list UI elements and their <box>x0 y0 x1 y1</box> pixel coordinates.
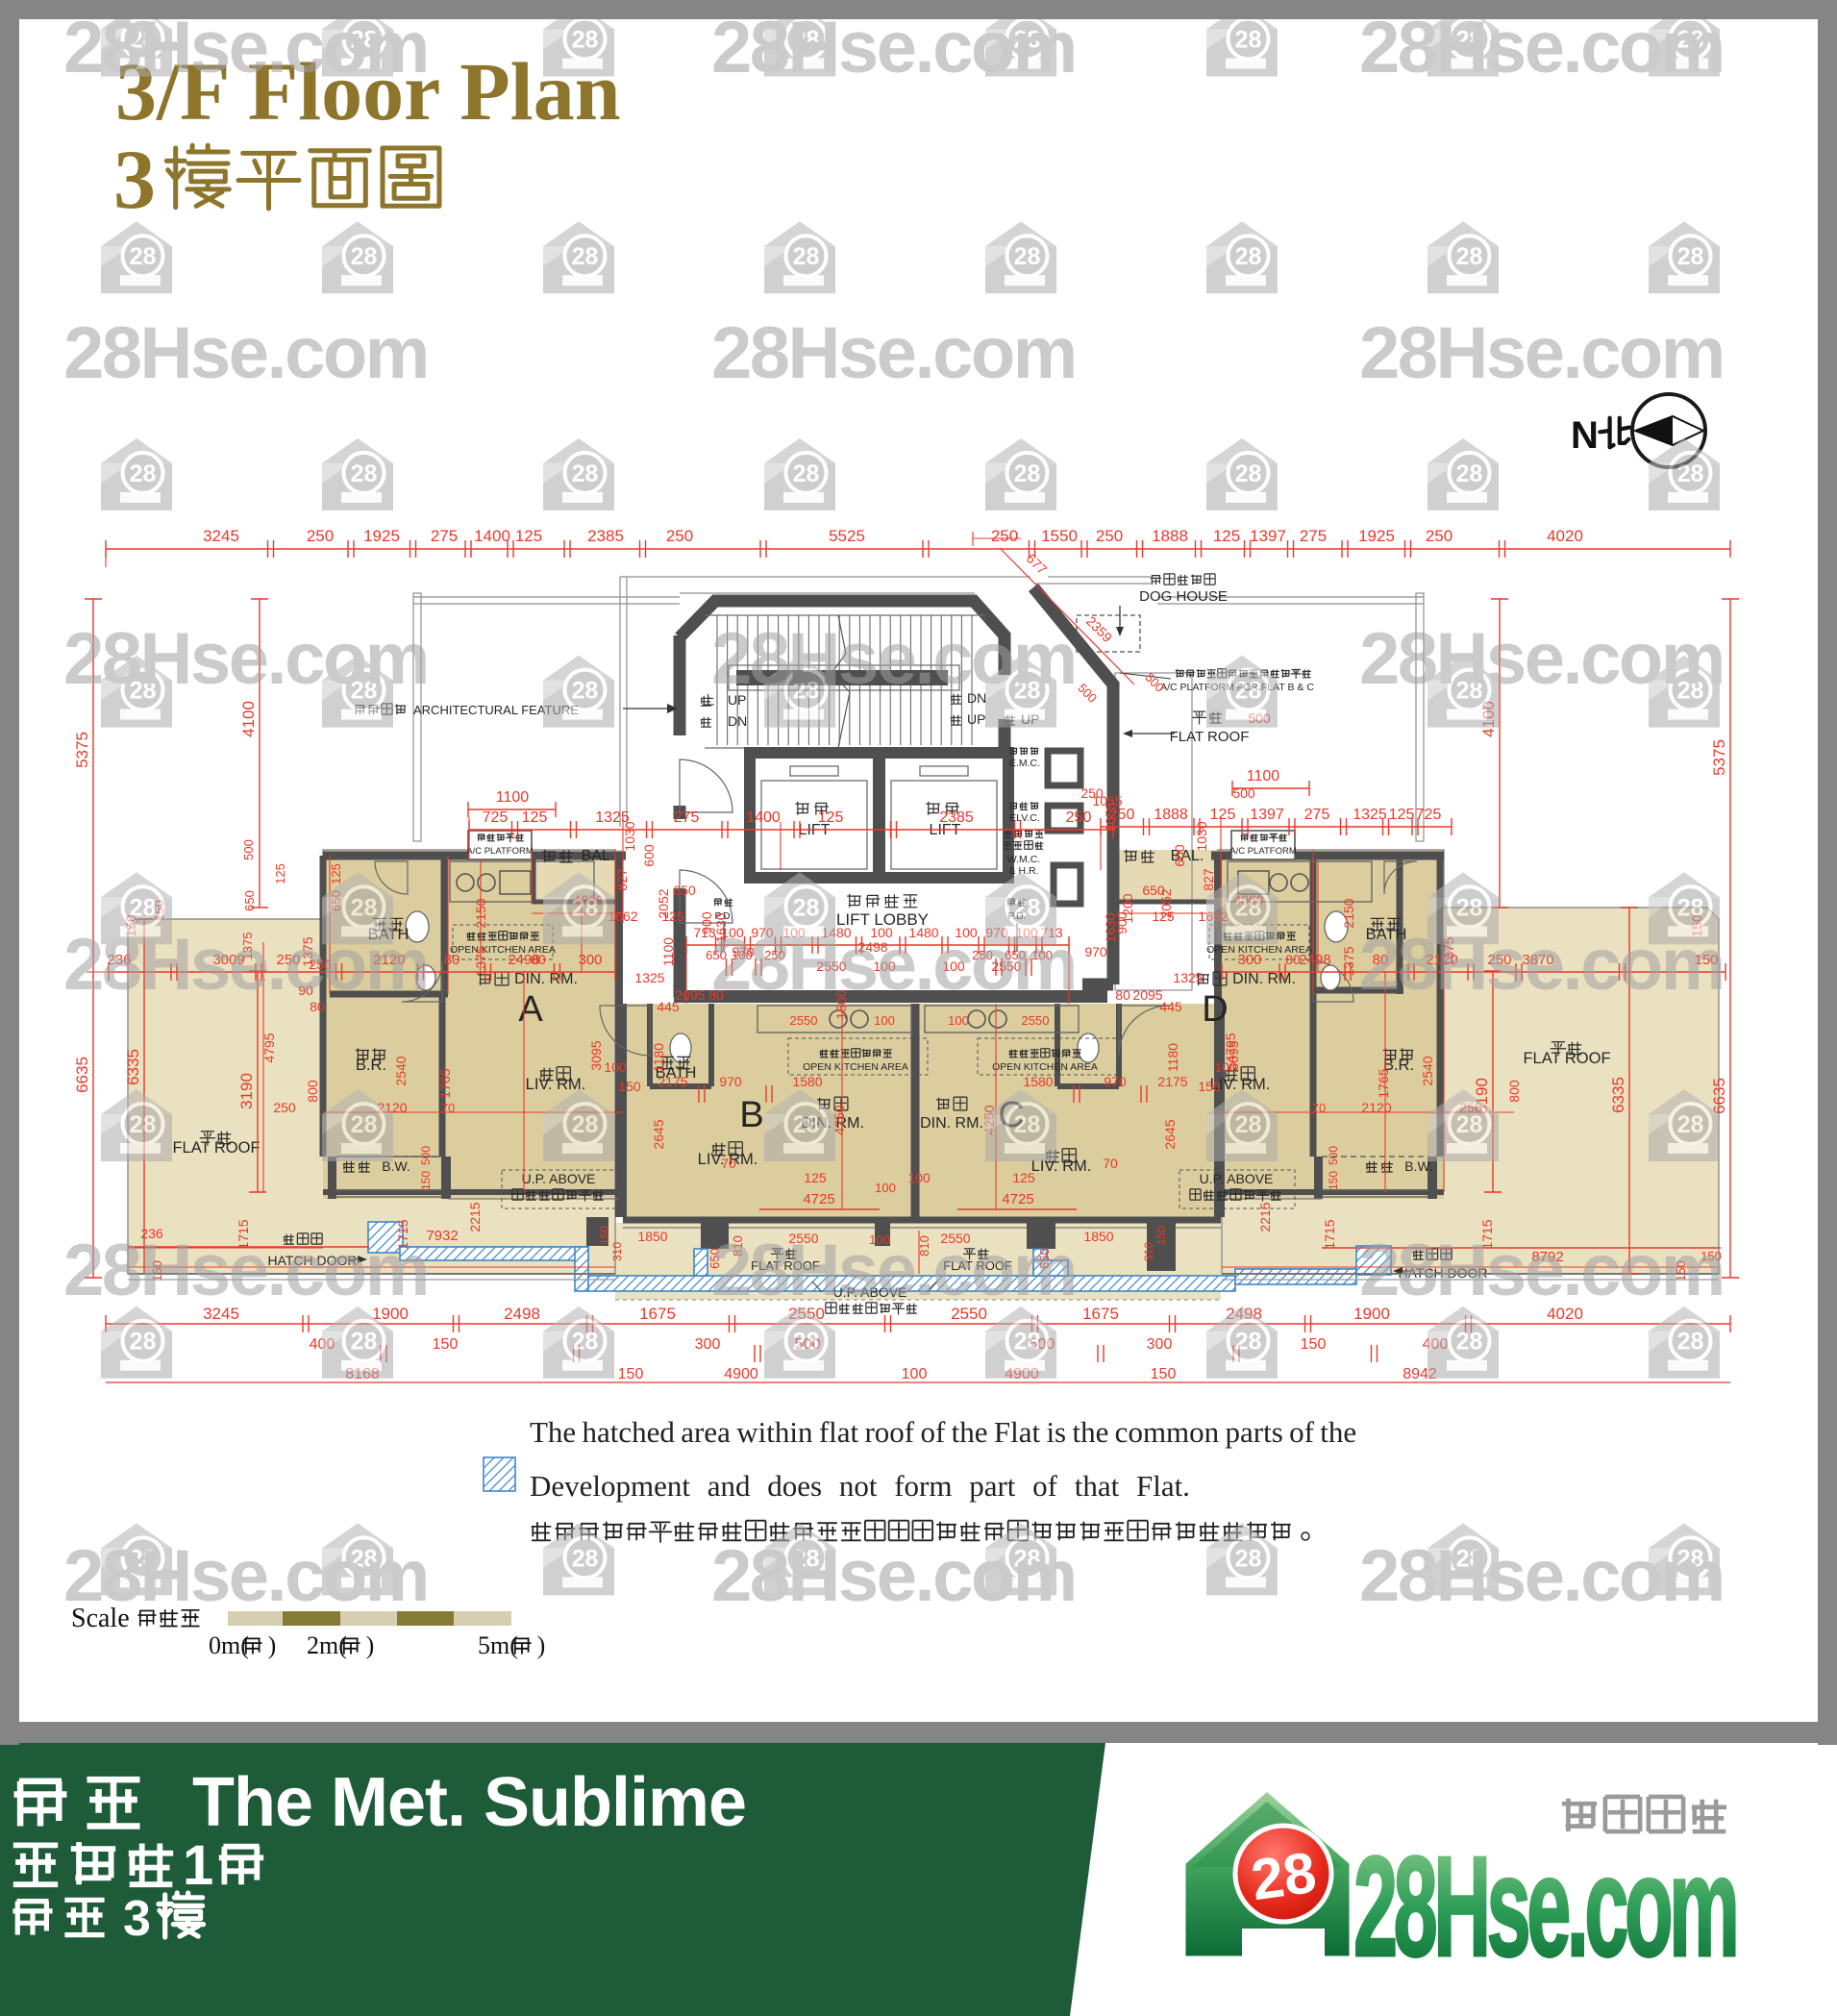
svg-text:E.M.C.: E.M.C. <box>1009 758 1040 769</box>
svg-text:1765: 1765 <box>437 1068 453 1098</box>
svg-text:): ) <box>268 1631 277 1659</box>
svg-text:28Hse.com: 28Hse.com <box>63 618 428 700</box>
svg-text:250: 250 <box>991 527 1018 545</box>
svg-text:445: 445 <box>1159 999 1182 1014</box>
svg-text:28Hse.com: 28Hse.com <box>63 1535 428 1617</box>
svg-text:70: 70 <box>721 1156 736 1171</box>
svg-text:70: 70 <box>441 1101 455 1115</box>
svg-text:1888: 1888 <box>1152 527 1188 545</box>
svg-text:800: 800 <box>305 1080 320 1103</box>
svg-text:125: 125 <box>804 1170 827 1185</box>
svg-text:28Hse.com: 28Hse.com <box>63 1230 428 1311</box>
svg-text:7932: 7932 <box>426 1228 458 1244</box>
svg-text:3: 3 <box>123 1891 151 1947</box>
svg-text:1397: 1397 <box>1250 527 1286 545</box>
svg-text:970: 970 <box>1084 944 1107 959</box>
svg-text:150: 150 <box>1327 1171 1340 1190</box>
svg-text:The Met. Sublime: The Met. Sublime <box>192 1764 746 1841</box>
svg-text:1: 1 <box>183 1834 213 1897</box>
svg-text:275: 275 <box>674 809 700 826</box>
svg-text:125: 125 <box>1210 807 1236 823</box>
svg-text:4725: 4725 <box>1002 1191 1033 1207</box>
svg-text:5375: 5375 <box>73 732 91 768</box>
svg-text:2385: 2385 <box>939 809 974 826</box>
svg-text:150: 150 <box>1301 1336 1327 1353</box>
svg-text:250: 250 <box>1426 527 1452 545</box>
svg-text:275: 275 <box>1304 807 1330 823</box>
svg-text:B: B <box>739 1095 763 1135</box>
svg-text:2645: 2645 <box>651 1119 666 1149</box>
svg-text:125: 125 <box>515 527 542 545</box>
svg-text:2215: 2215 <box>467 1202 483 1232</box>
svg-text:125: 125 <box>1012 1170 1035 1185</box>
svg-text:80: 80 <box>1285 952 1301 967</box>
svg-text:125: 125 <box>661 908 684 924</box>
svg-text:2550: 2550 <box>790 1013 818 1028</box>
svg-text:1925: 1925 <box>1358 527 1395 545</box>
svg-text:1550: 1550 <box>1041 527 1078 545</box>
svg-text:650: 650 <box>242 890 257 911</box>
svg-text:100: 100 <box>874 1013 895 1028</box>
svg-text:LIV. RM.: LIV. RM. <box>526 1076 586 1093</box>
svg-text:125: 125 <box>522 809 548 826</box>
svg-text:445: 445 <box>657 999 680 1014</box>
svg-text:W.M.C.: W.M.C. <box>1007 854 1040 865</box>
svg-text:1100: 1100 <box>496 789 530 806</box>
svg-text:970: 970 <box>1104 1074 1127 1089</box>
svg-text:100: 100 <box>875 1181 896 1195</box>
svg-text:1765: 1765 <box>1376 1068 1391 1098</box>
svg-text:1850: 1850 <box>637 1229 667 1244</box>
svg-text:DOG HOUSE: DOG HOUSE <box>1139 588 1228 605</box>
svg-text:U.P. ABOVE: U.P. ABOVE <box>1200 1171 1274 1186</box>
svg-text:FLAT ROOF: FLAT ROOF <box>1170 729 1250 745</box>
svg-text:500: 500 <box>1232 785 1255 801</box>
svg-text:6335: 6335 <box>1609 1077 1627 1113</box>
svg-text:125: 125 <box>1213 527 1240 545</box>
svg-text:125: 125 <box>329 863 343 884</box>
svg-text:300: 300 <box>695 1336 721 1353</box>
svg-text:DIN. RM.: DIN. RM. <box>1232 971 1296 987</box>
svg-text:150: 150 <box>1154 1226 1168 1245</box>
svg-text:28: 28 <box>1248 1840 1320 1913</box>
svg-text:FLAT ROOF: FLAT ROOF <box>1523 1050 1610 1067</box>
svg-text:1397: 1397 <box>1250 807 1284 823</box>
svg-text:1325: 1325 <box>1353 807 1387 823</box>
svg-text:1850: 1850 <box>1083 1229 1113 1244</box>
svg-text:600: 600 <box>1172 844 1187 867</box>
svg-text:28Hse.com: 28Hse.com <box>63 924 428 1006</box>
svg-text:970: 970 <box>719 1074 742 1089</box>
svg-text:150: 150 <box>598 1226 611 1245</box>
svg-text:3095: 3095 <box>588 1040 604 1070</box>
svg-text:80: 80 <box>444 952 460 968</box>
svg-text:310: 310 <box>610 1242 624 1261</box>
svg-text:A/C PLATFORM: A/C PLATFORM <box>466 846 534 857</box>
svg-text:500: 500 <box>419 1146 433 1165</box>
svg-text:300: 300 <box>1237 952 1261 968</box>
svg-text:2120: 2120 <box>1361 1100 1391 1115</box>
svg-text:1100: 1100 <box>1247 768 1280 784</box>
svg-text:1925: 1925 <box>363 527 400 545</box>
svg-text:DIN. RM.: DIN. RM. <box>920 1115 983 1132</box>
svg-text:6635: 6635 <box>1710 1078 1728 1114</box>
svg-text:150: 150 <box>433 1336 459 1353</box>
svg-text:150: 150 <box>1151 1366 1177 1382</box>
svg-text:125: 125 <box>1389 807 1415 823</box>
svg-text:250: 250 <box>666 527 693 545</box>
svg-text:28Hse.com: 28Hse.com <box>711 618 1076 700</box>
svg-text:5375: 5375 <box>1710 739 1728 776</box>
svg-text:2498: 2498 <box>1299 952 1330 968</box>
svg-text:D: D <box>1202 989 1228 1030</box>
svg-text:80: 80 <box>1115 987 1130 1003</box>
svg-text:100: 100 <box>948 1013 969 1028</box>
svg-text:150: 150 <box>618 1366 644 1382</box>
svg-text:6635: 6635 <box>73 1057 91 1093</box>
svg-text:A: A <box>518 989 543 1030</box>
svg-text:100: 100 <box>907 1170 931 1185</box>
svg-text:250: 250 <box>307 527 334 545</box>
svg-text:2385: 2385 <box>587 527 624 545</box>
svg-text:2150: 2150 <box>1341 898 1356 928</box>
svg-text:28Hse.com: 28Hse.com <box>711 1535 1076 1617</box>
svg-text:1180: 1180 <box>1165 1043 1180 1072</box>
svg-text:1180: 1180 <box>651 1043 666 1072</box>
svg-text:275: 275 <box>1300 527 1327 545</box>
svg-text:Development and does not form: Development and does not form part of th… <box>530 1469 1190 1503</box>
svg-text:500: 500 <box>1327 1146 1340 1165</box>
svg-text:1100: 1100 <box>660 937 676 966</box>
svg-text:2175: 2175 <box>1157 1074 1187 1089</box>
svg-text:250: 250 <box>273 1100 296 1115</box>
svg-text:100: 100 <box>604 1059 627 1075</box>
svg-text:1325: 1325 <box>1173 970 1203 985</box>
svg-text:4020: 4020 <box>1547 527 1583 545</box>
svg-text:28Hse.com: 28Hse.com <box>711 1230 1076 1311</box>
svg-text:1030: 1030 <box>1194 821 1209 851</box>
svg-text:2m(: 2m( <box>307 1631 347 1659</box>
svg-text:2498: 2498 <box>504 1305 540 1323</box>
svg-text:250: 250 <box>1096 527 1123 545</box>
svg-text:725: 725 <box>483 809 509 826</box>
svg-text:275: 275 <box>431 527 458 545</box>
svg-text:4100: 4100 <box>239 701 258 737</box>
svg-text:DN: DN <box>728 713 747 729</box>
svg-text:800: 800 <box>1506 1080 1522 1103</box>
svg-text:6335: 6335 <box>124 1049 142 1085</box>
svg-text:U.P. ABOVE: U.P. ABOVE <box>522 1171 596 1186</box>
svg-text:28Hse.com: 28Hse.com <box>1359 312 1724 394</box>
svg-text:827: 827 <box>1201 868 1216 891</box>
svg-text:1580: 1580 <box>1023 1074 1053 1089</box>
svg-text:4900: 4900 <box>724 1366 758 1382</box>
svg-text:5525: 5525 <box>829 527 865 545</box>
svg-text:125: 125 <box>273 863 287 884</box>
svg-text:80: 80 <box>531 952 546 967</box>
svg-text:The hatched area within flat r: The hatched area within flat roof of the… <box>530 1415 1356 1449</box>
svg-text:2540: 2540 <box>393 1056 409 1085</box>
svg-text:1400: 1400 <box>474 527 510 545</box>
svg-text:150: 150 <box>1198 1079 1221 1094</box>
svg-text:4725: 4725 <box>803 1191 834 1207</box>
svg-text:OPEN KITCHEN AREA: OPEN KITCHEN AREA <box>992 1061 1098 1073</box>
svg-text:3190: 3190 <box>237 1073 256 1109</box>
svg-text:2550: 2550 <box>1022 1013 1050 1028</box>
svg-text:2215: 2215 <box>1257 1202 1273 1232</box>
svg-text:B.R.: B.R. <box>356 1057 386 1074</box>
svg-text:UP: UP <box>967 711 985 727</box>
svg-text:310: 310 <box>1142 1242 1155 1261</box>
svg-text:3: 3 <box>113 134 156 227</box>
svg-text:28Hse.com: 28Hse.com <box>711 924 1076 1006</box>
svg-text:70: 70 <box>1312 1101 1326 1115</box>
svg-text:4795: 4795 <box>1223 1033 1238 1062</box>
svg-text:600: 600 <box>641 844 657 867</box>
svg-text:OPEN KITCHEN AREA: OPEN KITCHEN AREA <box>803 1061 908 1073</box>
svg-text:N: N <box>1571 414 1599 457</box>
svg-text:BAL.: BAL. <box>582 848 615 864</box>
svg-text:1400: 1400 <box>746 809 781 826</box>
svg-text:A/C PLATFORM: A/C PLATFORM <box>1229 846 1297 857</box>
svg-text:28Hse.com: 28Hse.com <box>1359 1230 1724 1311</box>
svg-text:500: 500 <box>241 839 256 860</box>
svg-text:1715: 1715 <box>1322 1219 1337 1249</box>
svg-text:300: 300 <box>1147 1336 1173 1353</box>
svg-text:1580: 1580 <box>792 1074 822 1089</box>
svg-text:1675: 1675 <box>639 1305 676 1323</box>
svg-text:250: 250 <box>1066 809 1092 826</box>
svg-text:1325: 1325 <box>634 970 664 985</box>
svg-text:28Hse.com: 28Hse.com <box>1359 924 1724 1006</box>
svg-text:2645: 2645 <box>1162 1119 1178 1149</box>
svg-text:2095: 2095 <box>675 987 705 1003</box>
svg-text:28Hse.com: 28Hse.com <box>1359 618 1724 700</box>
svg-text:28Hse.com: 28Hse.com <box>711 312 1076 394</box>
svg-text:0m(: 0m( <box>209 1631 249 1659</box>
svg-text:): ) <box>366 1631 375 1659</box>
svg-text:2175: 2175 <box>658 1074 687 1089</box>
svg-text:3245: 3245 <box>203 527 239 545</box>
svg-text:1675: 1675 <box>1082 1305 1119 1323</box>
svg-text:1030: 1030 <box>622 821 637 851</box>
svg-text:28Hse.com: 28Hse.com <box>63 312 428 394</box>
svg-text:650: 650 <box>673 883 696 898</box>
svg-text:FLAT ROOF: FLAT ROOF <box>172 1139 260 1157</box>
svg-text:28Hse.com: 28Hse.com <box>1353 1828 1735 1986</box>
svg-text:250: 250 <box>1080 785 1104 801</box>
svg-text:125: 125 <box>818 809 844 826</box>
svg-text:5m(: 5m( <box>478 1631 518 1659</box>
svg-text:827: 827 <box>614 868 630 891</box>
svg-text:150: 150 <box>419 1171 433 1190</box>
svg-text:100: 100 <box>902 1366 928 1382</box>
svg-text:125: 125 <box>1152 908 1175 924</box>
svg-text:2540: 2540 <box>1420 1056 1435 1085</box>
svg-text:150: 150 <box>618 1079 641 1094</box>
svg-text:650: 650 <box>1142 883 1165 898</box>
svg-text:1888: 1888 <box>1154 807 1188 823</box>
svg-text:725: 725 <box>1416 807 1442 823</box>
svg-text:100: 100 <box>1214 1059 1237 1075</box>
svg-text:2095: 2095 <box>1132 987 1162 1003</box>
svg-text:1200: 1200 <box>1120 893 1135 923</box>
svg-text:70: 70 <box>1103 1156 1118 1171</box>
svg-text:28Hse.com: 28Hse.com <box>1359 1535 1724 1617</box>
svg-text:): ) <box>537 1631 546 1659</box>
